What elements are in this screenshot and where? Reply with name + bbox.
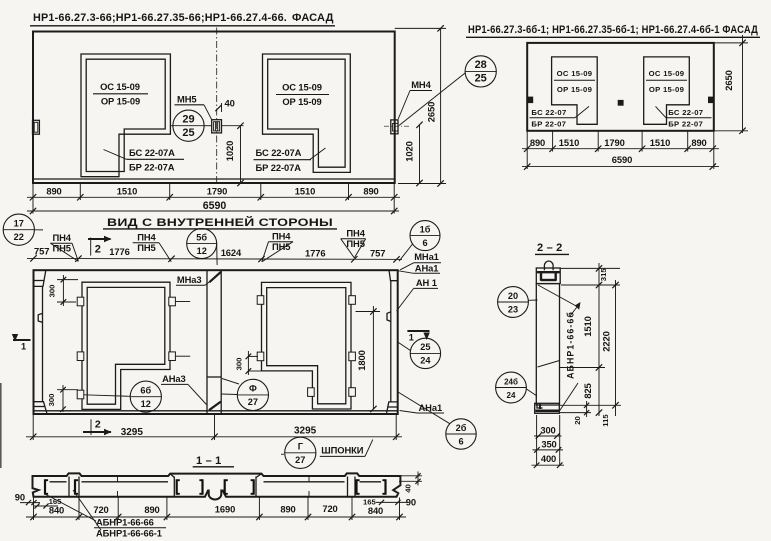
svg-text:ПН5: ПН5 — [346, 238, 364, 249]
svg-text:ПН5: ПН5 — [137, 242, 155, 253]
svg-text:6590: 6590 — [203, 200, 227, 212]
svg-text:МН4: МН4 — [411, 79, 431, 90]
svg-text:3295: 3295 — [294, 426, 317, 437]
svg-text:ОС 15-09: ОС 15-09 — [649, 69, 685, 78]
svg-text:5б: 5б — [196, 232, 207, 242]
svg-text:АН 1: АН 1 — [416, 277, 437, 288]
svg-text:25: 25 — [420, 342, 430, 352]
svg-text:1510: 1510 — [650, 137, 670, 148]
svg-text:1020: 1020 — [404, 141, 415, 161]
svg-text:ОР 15-09: ОР 15-09 — [557, 85, 592, 94]
svg-text:БС 22-07А: БС 22-07А — [256, 147, 302, 158]
svg-text:2650: 2650 — [723, 70, 734, 90]
svg-text:ПН5: ПН5 — [272, 241, 290, 252]
svg-text:1510: 1510 — [117, 186, 137, 197]
svg-text:890: 890 — [46, 186, 61, 197]
svg-text:БС 22-07: БС 22-07 — [668, 108, 703, 117]
svg-text:28: 28 — [475, 59, 487, 71]
svg-text:ОР 15-09: ОР 15-09 — [282, 96, 321, 107]
svg-text:400: 400 — [541, 453, 556, 464]
svg-text:300: 300 — [47, 394, 56, 407]
svg-text:1624: 1624 — [221, 247, 242, 258]
svg-text:НР1-66.27.3-6б-1; НР1-66.27.35: НР1-66.27.3-6б-1; НР1-66.27.35-6б-1; НР1… — [468, 24, 758, 36]
svg-text:24: 24 — [507, 391, 516, 400]
svg-text:БС 22-07А: БС 22-07А — [129, 147, 175, 158]
svg-text:757: 757 — [34, 246, 49, 257]
svg-text:1: 1 — [409, 333, 414, 343]
svg-text:2: 2 — [95, 419, 101, 431]
svg-text:890: 890 — [144, 504, 159, 515]
svg-text:6: 6 — [422, 238, 427, 248]
svg-text:ПН4: ПН4 — [346, 228, 365, 239]
svg-text:1776: 1776 — [109, 246, 129, 257]
svg-text:890: 890 — [691, 137, 706, 148]
svg-text:2б: 2б — [456, 423, 467, 433]
svg-text:840: 840 — [368, 505, 383, 516]
svg-text:МНа1: МНа1 — [414, 251, 439, 262]
svg-text:2650: 2650 — [426, 102, 437, 122]
svg-text:23: 23 — [508, 304, 518, 314]
svg-text:Ф: Ф — [249, 384, 257, 394]
svg-text:20: 20 — [508, 291, 518, 301]
svg-text:2220: 2220 — [601, 331, 612, 351]
svg-text:1: 1 — [21, 342, 26, 352]
svg-text:АБНР1-66-66: АБНР1-66-66 — [96, 517, 154, 528]
svg-text:40: 40 — [404, 484, 413, 493]
svg-text:1790: 1790 — [207, 186, 227, 197]
svg-text:ПН4: ПН4 — [272, 231, 291, 242]
svg-text:АБНР1-66-6б: АБНР1-66-6б — [566, 311, 576, 379]
svg-text:1690: 1690 — [215, 504, 235, 515]
svg-text:1776: 1776 — [305, 248, 325, 259]
svg-text:720: 720 — [322, 503, 337, 514]
svg-text:ОР 15-09: ОР 15-09 — [101, 96, 140, 107]
svg-text:АНа1: АНа1 — [419, 402, 443, 413]
svg-text:350: 350 — [541, 438, 556, 449]
svg-text:115: 115 — [601, 414, 610, 427]
svg-text:6590: 6590 — [612, 154, 632, 165]
svg-text:ОС 15-09: ОС 15-09 — [282, 82, 322, 93]
svg-text:3295: 3295 — [121, 427, 144, 438]
svg-text:ШПОНКИ: ШПОНКИ — [321, 445, 363, 456]
svg-text:24б: 24б — [504, 377, 518, 386]
svg-text:6б: 6б — [140, 386, 151, 396]
svg-text:40: 40 — [225, 98, 235, 109]
svg-text:БР 22-07: БР 22-07 — [531, 120, 566, 129]
svg-text:1020: 1020 — [224, 141, 235, 161]
svg-text:БР 22-07: БР 22-07 — [668, 120, 703, 129]
svg-text:НР1-66.27.3-66;НР1-66.27.35-66: НР1-66.27.3-66;НР1-66.27.35-66;НР1-66.27… — [33, 12, 287, 24]
svg-text:315: 315 — [599, 268, 608, 282]
svg-text:БС 22-07: БС 22-07 — [531, 108, 566, 117]
svg-text:890: 890 — [280, 503, 295, 514]
svg-text:БР 22-07А: БР 22-07А — [256, 162, 302, 173]
svg-text:25: 25 — [475, 73, 487, 85]
svg-text:ПН4: ПН4 — [137, 232, 156, 243]
svg-text:АБНР1-66-66-1: АБНР1-66-66-1 — [96, 527, 162, 538]
svg-text:АНа1: АНа1 — [415, 263, 439, 274]
svg-text:890: 890 — [530, 137, 545, 148]
svg-text:1510: 1510 — [582, 316, 593, 336]
svg-text:ПН4: ПН4 — [53, 232, 72, 243]
svg-text:БР 22-07А: БР 22-07А — [129, 162, 175, 173]
svg-text:ОС 15-09: ОС 15-09 — [100, 81, 140, 92]
svg-text:2: 2 — [95, 244, 101, 256]
svg-text:ФАСАД: ФАСАД — [292, 12, 334, 24]
svg-text:29: 29 — [182, 114, 194, 126]
svg-text:6: 6 — [458, 436, 463, 446]
svg-text:ОС 15-09: ОС 15-09 — [557, 69, 593, 78]
svg-text:1800: 1800 — [356, 350, 367, 370]
svg-text:300: 300 — [235, 358, 244, 371]
svg-text:2 – 2: 2 – 2 — [537, 242, 562, 254]
svg-text:17: 17 — [14, 219, 24, 229]
svg-text:757: 757 — [370, 247, 385, 258]
svg-text:20: 20 — [573, 416, 582, 425]
svg-text:90: 90 — [15, 492, 25, 503]
svg-text:300: 300 — [540, 425, 555, 436]
svg-text:1790: 1790 — [604, 137, 624, 148]
svg-text:АНа3: АНа3 — [162, 373, 186, 384]
svg-text:27: 27 — [295, 455, 305, 465]
svg-text:720: 720 — [93, 504, 108, 515]
svg-text:300: 300 — [48, 285, 57, 298]
svg-text:22: 22 — [14, 232, 24, 242]
svg-text:1510: 1510 — [295, 186, 315, 197]
svg-text:24: 24 — [420, 356, 431, 366]
svg-text:12: 12 — [197, 246, 207, 256]
svg-text:МНа3: МНа3 — [177, 274, 202, 285]
svg-text:ВИД С ВНУТРЕННЕЙ СТОРОНЫ: ВИД С ВНУТРЕННЕЙ СТОРОНЫ — [107, 216, 333, 229]
svg-text:90: 90 — [406, 496, 416, 507]
svg-text:825: 825 — [582, 383, 593, 398]
svg-text:25: 25 — [182, 127, 194, 139]
svg-text:12: 12 — [141, 399, 151, 409]
svg-text:27: 27 — [248, 397, 258, 407]
svg-text:МН5: МН5 — [177, 94, 197, 105]
svg-text:ОР 15-09: ОР 15-09 — [649, 85, 684, 94]
svg-text:ПН5: ПН5 — [53, 243, 71, 254]
svg-text:1б: 1б — [420, 224, 431, 234]
svg-text:1510: 1510 — [559, 137, 579, 148]
svg-text:890: 890 — [363, 186, 378, 197]
svg-text:Г: Г — [298, 442, 304, 452]
svg-text:1 – 1: 1 – 1 — [196, 455, 221, 467]
